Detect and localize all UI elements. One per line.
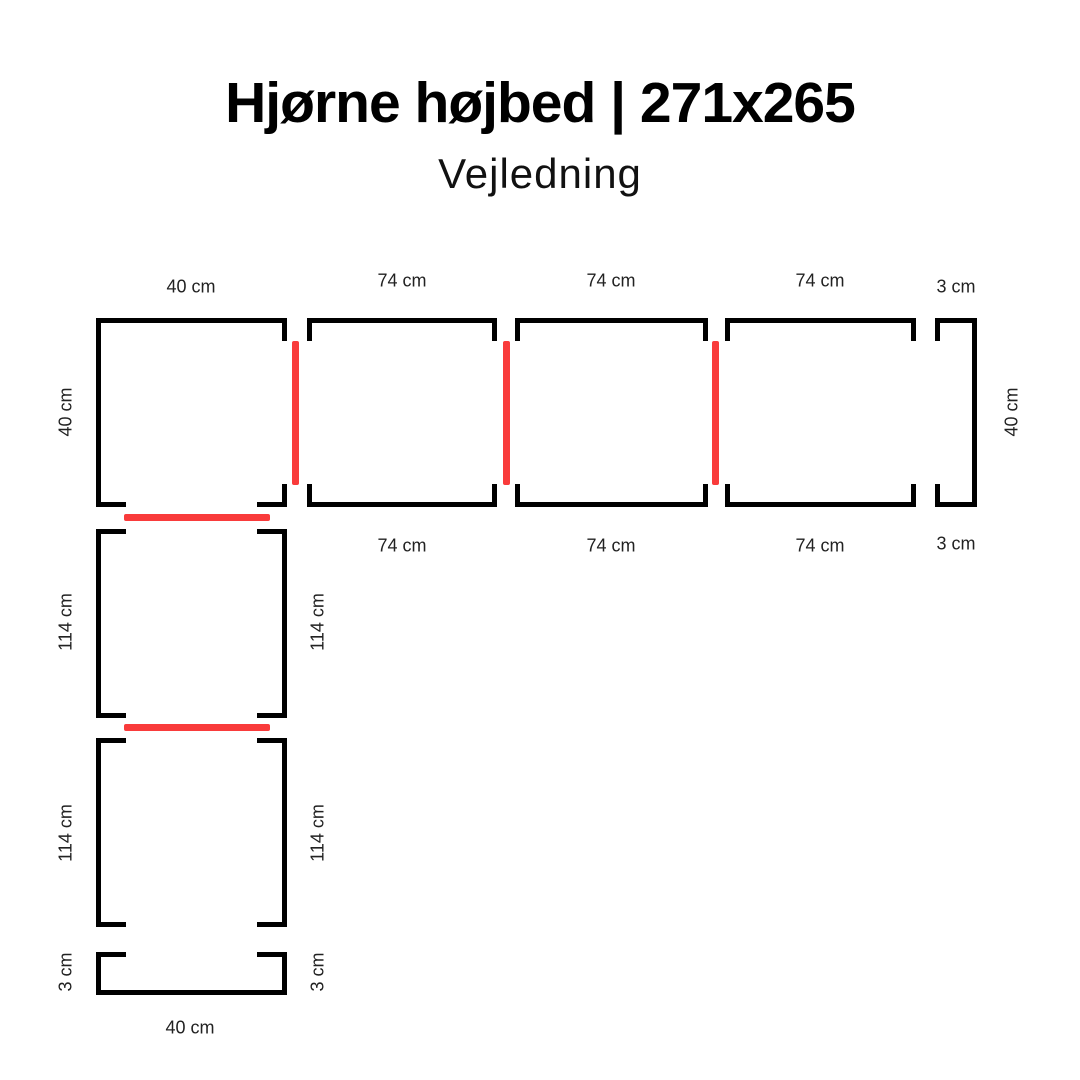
panel-left-board-2 xyxy=(96,738,287,927)
panel-edge xyxy=(972,318,977,507)
assembly-diagram: 40 cm 74 cm 74 cm 74 cm 3 cm 74 cm 74 cm… xyxy=(0,0,1080,1080)
panel-edge xyxy=(96,318,101,507)
panel-edge xyxy=(282,952,287,995)
panel-edge xyxy=(935,502,977,507)
dim-label-top-end-strip-top: 3 cm xyxy=(936,277,975,298)
panel-edge xyxy=(257,952,287,957)
dim-label-left-end-strip-right: 3 cm xyxy=(308,952,329,991)
panel-edge xyxy=(282,529,287,718)
panel-edge xyxy=(96,529,126,534)
panel-edge xyxy=(307,484,312,507)
dim-label-top-board-3-bottom: 74 cm xyxy=(795,536,844,557)
panel-edge xyxy=(96,952,126,957)
connector-red-vertical-2 xyxy=(503,341,510,485)
panel-edge xyxy=(935,318,977,323)
panel-edge xyxy=(307,318,312,341)
connector-red-horizontal-1 xyxy=(124,514,270,521)
dim-label-corner-side: 40 cm xyxy=(56,387,77,436)
panel-edge xyxy=(703,318,708,341)
panel-edge xyxy=(282,318,287,341)
panel-edge xyxy=(96,738,101,927)
panel-edge xyxy=(492,318,497,341)
panel-edge xyxy=(96,990,287,995)
panel-edge xyxy=(257,713,287,718)
panel-top-board-2 xyxy=(515,318,708,507)
dim-label-top-board-1-top: 74 cm xyxy=(377,271,426,292)
panel-edge xyxy=(96,922,126,927)
dim-label-left-end-strip-bottom: 40 cm xyxy=(165,1018,214,1039)
connector-red-vertical-1 xyxy=(292,341,299,485)
dim-label-left-board-2-right: 114 cm xyxy=(308,804,329,862)
dim-label-left-board-2-left: 114 cm xyxy=(56,804,77,862)
dim-label-top-end-strip-bottom: 3 cm xyxy=(936,534,975,555)
panel-edge xyxy=(257,529,287,534)
panel-edge xyxy=(96,713,126,718)
connector-red-horizontal-2 xyxy=(124,724,270,731)
panel-edge xyxy=(96,318,287,323)
dim-label-top-board-3-top: 74 cm xyxy=(795,271,844,292)
dim-label-left-board-1-left: 114 cm xyxy=(56,593,77,651)
panel-edge xyxy=(725,318,730,341)
panel-top-board-3 xyxy=(725,318,916,507)
panel-edge xyxy=(935,318,940,341)
panel-edge xyxy=(257,922,287,927)
vejledning-page: Hjørne højbed | 271x265 Vejledning xyxy=(0,0,1080,1080)
panel-edge xyxy=(725,502,916,507)
panel-edge xyxy=(515,318,708,323)
panel-edge xyxy=(515,484,520,507)
dim-label-top-board-2-bottom: 74 cm xyxy=(586,536,635,557)
dim-label-top-board-2-top: 74 cm xyxy=(586,271,635,292)
connector-red-vertical-3 xyxy=(712,341,719,485)
panel-edge xyxy=(911,318,916,341)
panel-edge xyxy=(96,502,126,507)
panel-edge xyxy=(492,484,497,507)
panel-corner-40x40 xyxy=(96,318,287,507)
panel-edge xyxy=(935,484,940,507)
panel-edge xyxy=(515,318,520,341)
panel-edge xyxy=(725,318,916,323)
panel-edge xyxy=(96,529,101,718)
panel-top-end-strip xyxy=(935,318,977,507)
panel-left-board-1 xyxy=(96,529,287,718)
dim-label-corner-top: 40 cm xyxy=(166,277,215,298)
panel-top-board-1 xyxy=(307,318,497,507)
dim-label-top-board-1-bottom: 74 cm xyxy=(377,536,426,557)
panel-edge xyxy=(282,738,287,927)
panel-edge xyxy=(703,484,708,507)
panel-edge xyxy=(96,952,101,995)
panel-edge xyxy=(96,738,126,743)
panel-edge xyxy=(911,484,916,507)
panel-edge xyxy=(515,502,708,507)
dim-label-top-end-strip-side: 40 cm xyxy=(1002,387,1023,436)
panel-edge xyxy=(725,484,730,507)
panel-edge xyxy=(257,738,287,743)
panel-edge xyxy=(307,318,497,323)
dim-label-left-board-1-right: 114 cm xyxy=(308,593,329,651)
panel-left-end-strip xyxy=(96,952,287,995)
panel-edge xyxy=(307,502,497,507)
panel-edge xyxy=(257,502,287,507)
dim-label-left-end-strip-left: 3 cm xyxy=(56,952,77,991)
